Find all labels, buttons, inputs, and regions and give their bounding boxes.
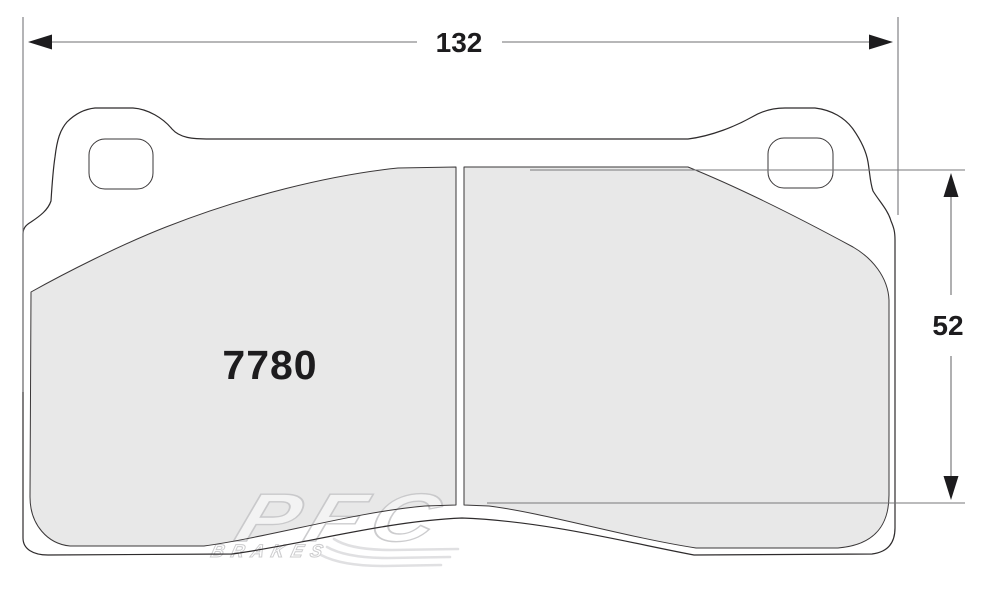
watermark-brakes-text: BRAKES — [209, 540, 332, 561]
width-arrow-left — [28, 35, 52, 50]
height-arrow-top — [944, 173, 959, 197]
pad-fills — [23, 108, 895, 555]
width-dimension-label: 132 — [436, 27, 483, 58]
watermark: PFC BRAKES — [209, 481, 459, 566]
height-arrow-bottom — [944, 476, 959, 500]
width-arrow-right — [869, 35, 893, 50]
right-ear-hole-fill — [768, 138, 833, 188]
brake-pad-drawing: PFC BRAKES 132 52 7780 — [0, 0, 1000, 595]
drawing-canvas: PFC BRAKES 132 52 7780 — [0, 0, 1000, 595]
part-number-label: 7780 — [222, 342, 317, 388]
left-ear-hole-fill — [89, 139, 153, 189]
height-dimension-label: 52 — [932, 310, 963, 341]
